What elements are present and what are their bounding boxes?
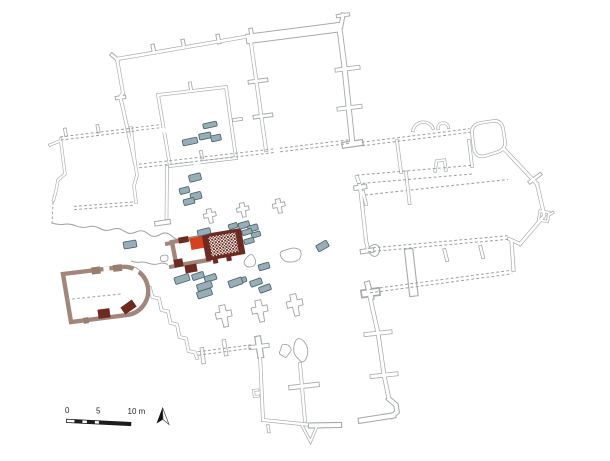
svg-text:5: 5 (96, 407, 101, 416)
svg-text:10 m: 10 m (128, 407, 146, 416)
svg-text:0: 0 (65, 406, 70, 415)
